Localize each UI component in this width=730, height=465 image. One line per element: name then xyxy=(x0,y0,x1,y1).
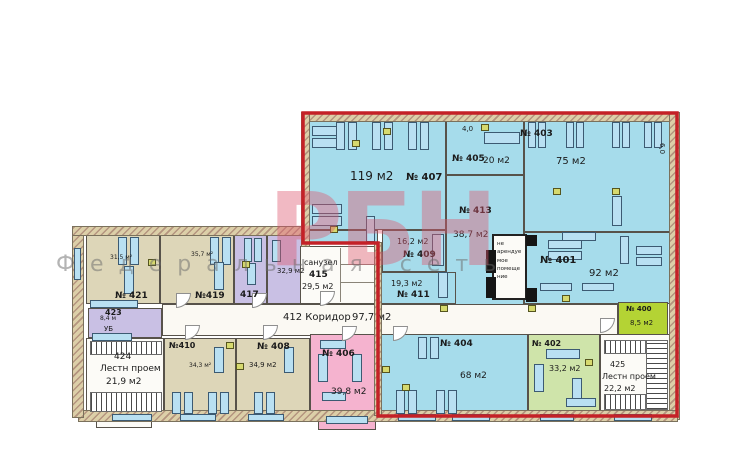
window xyxy=(614,414,652,421)
desk xyxy=(548,240,582,249)
stairwell-424-label: Лестн проем xyxy=(100,364,161,374)
room-406-number: № 406 xyxy=(322,349,355,359)
desk xyxy=(484,132,520,144)
window xyxy=(396,390,405,414)
desk xyxy=(214,347,224,373)
window xyxy=(566,122,574,148)
window xyxy=(112,414,152,421)
corridor-label: 412 Коридор xyxy=(283,312,351,324)
room-401-number: № 401 xyxy=(540,255,576,267)
stair-treads xyxy=(90,392,162,412)
stairwell-425-label: Лестн проем xyxy=(602,372,656,381)
window xyxy=(612,122,620,148)
utility-box xyxy=(585,359,593,366)
utility-box xyxy=(481,124,489,131)
room-400-number: № 400 xyxy=(626,305,651,313)
stairwell-424-number: 424 xyxy=(114,352,131,362)
window xyxy=(436,390,445,414)
wall xyxy=(669,112,680,420)
window xyxy=(644,122,652,148)
room-403-area: 75 м2 xyxy=(556,156,586,168)
room-404-number: № 404 xyxy=(440,339,473,349)
window xyxy=(92,333,132,341)
window xyxy=(180,414,216,421)
room-423-area: 8,4 м xyxy=(100,316,116,323)
room-417-number: 417 xyxy=(240,290,259,300)
room-401-area: 92 м2 xyxy=(589,268,619,280)
desk xyxy=(546,349,580,359)
desk xyxy=(636,246,662,255)
utility-box xyxy=(383,128,391,135)
stairwell-424-area: 21,9 м2 xyxy=(106,377,141,387)
desk xyxy=(620,236,629,264)
utility-box xyxy=(562,295,570,302)
window xyxy=(408,122,417,150)
wall xyxy=(301,112,680,122)
stairwell-425-number: 425 xyxy=(610,360,625,369)
window xyxy=(372,122,381,150)
utility-box xyxy=(236,363,244,370)
window xyxy=(576,122,584,148)
window xyxy=(326,416,368,424)
window xyxy=(622,122,630,148)
window xyxy=(420,122,429,150)
room-421-number: № 421 xyxy=(115,291,148,301)
desk xyxy=(430,337,439,359)
desk xyxy=(582,283,614,291)
desk xyxy=(320,340,346,349)
window xyxy=(398,414,436,421)
floor-plan: не арендуе мое помеще ние xyxy=(0,0,730,465)
window xyxy=(220,392,229,414)
room-404-area: 68 м2 xyxy=(460,371,487,381)
elevator-shaft xyxy=(526,235,537,246)
elevator-shaft xyxy=(526,288,537,302)
stair-treads xyxy=(604,394,646,410)
room-402-number: № 402 xyxy=(532,339,561,348)
utility-box xyxy=(226,342,234,349)
room-405-area: 20 м2 xyxy=(483,156,510,166)
watermark-subtitle: Федеральная сеть xyxy=(56,252,511,277)
window xyxy=(172,392,181,414)
window xyxy=(248,414,284,421)
window xyxy=(540,414,574,421)
desk xyxy=(418,337,427,359)
room-410-area: 34,3 м² xyxy=(189,363,211,370)
utility-box xyxy=(528,305,536,312)
window xyxy=(336,122,345,150)
window xyxy=(184,392,193,414)
room-410-number: №410 xyxy=(169,341,195,350)
window xyxy=(452,414,490,421)
room-400-area: 8,5 м2 xyxy=(630,319,653,327)
window xyxy=(208,392,217,414)
window xyxy=(384,122,393,150)
stair-treads xyxy=(604,340,646,354)
corridor-area: 97,7 м2 xyxy=(352,312,391,324)
window xyxy=(266,392,275,414)
room-408-number: № 408 xyxy=(257,342,290,352)
desk xyxy=(540,283,572,291)
utility-box xyxy=(440,305,448,312)
window xyxy=(408,390,417,414)
dim-label: 4,0 xyxy=(462,125,473,133)
room-411-number: № 411 xyxy=(397,290,430,300)
room-406-area: 39,8 м2 xyxy=(331,387,366,397)
window xyxy=(448,390,457,414)
desk xyxy=(566,398,596,407)
room-419-number: №419 xyxy=(195,291,225,301)
room-402-area: 33,2 м2 xyxy=(549,364,580,373)
utility-box xyxy=(612,188,620,195)
desk xyxy=(636,257,662,266)
room-403-number: № 403 xyxy=(520,129,553,139)
room-408-area: 34,9 м2 xyxy=(249,361,277,369)
window xyxy=(254,392,263,414)
desk xyxy=(612,196,622,226)
utility-box xyxy=(553,188,561,195)
utility-box xyxy=(382,366,390,373)
room-423-note: УБ xyxy=(104,325,113,333)
room-405-number: № 405 xyxy=(452,154,485,164)
desk xyxy=(534,364,544,392)
utility-box xyxy=(402,384,410,391)
dim-label: 6,0 xyxy=(658,143,666,154)
utility-box xyxy=(352,140,360,147)
stairwell-425-area: 22,2 м2 xyxy=(604,384,635,393)
